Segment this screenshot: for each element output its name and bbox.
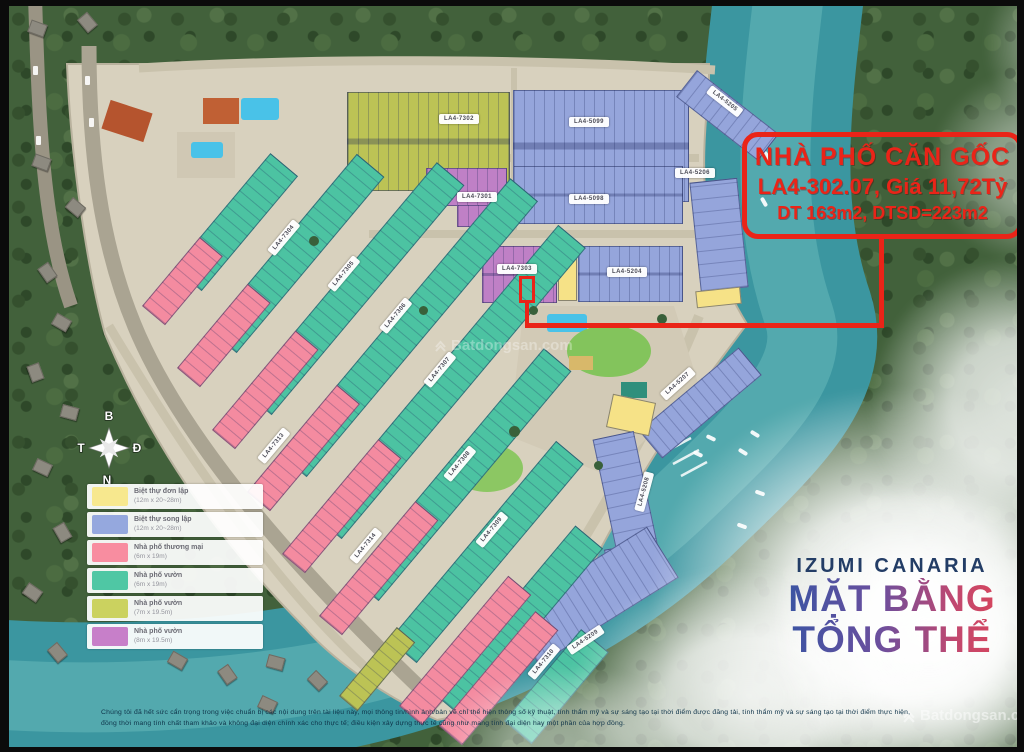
listing-annotation-box: NHÀ PHỐ CĂN GỐC LA4-302.07, Giá 11,72Tỷ … (742, 132, 1017, 239)
legend-swatch (92, 487, 128, 506)
highlighted-lot (519, 276, 535, 303)
legend-text: Biệt thự đơn lập(12m x 20~28m) (134, 488, 188, 504)
legend-text: Nhà phố thương mại(6m x 19m) (134, 544, 203, 560)
watermark-center: Batdongsan.com (434, 337, 573, 354)
annotation-connector-horizontal (525, 323, 884, 328)
block-label: LA4-7303 (497, 264, 537, 274)
legend-text: Nhà phố vườn(6m x 19m) (134, 572, 182, 588)
title-line2: TỔNG THỂ (764, 619, 1017, 660)
title-line1: MẶT BẰNG (764, 578, 1017, 619)
legend-item: Biệt thự đơn lập(12m x 20~28m) (87, 484, 263, 509)
legend-item: Nhà phố vườn(8m x 19.5m) (87, 624, 263, 649)
block-label: LA4-7302 (439, 114, 479, 124)
compass-west-label: T (77, 441, 85, 455)
masterplan-canvas: LA4-7302 LA4-5099 LA4-7301 LA4-5098 LA4-… (9, 6, 1017, 747)
annotation-line2: LA4-302.07, Giá 11,72Tỷ (747, 174, 1017, 200)
compass-rose: B Đ N T (73, 406, 145, 490)
legend-swatch (92, 627, 128, 646)
screenshot-frame: LA4-7302 LA4-5099 LA4-7301 LA4-5098 LA4-… (0, 0, 1024, 752)
disclaimer-line2: đồng thời mang tính chất tham khảo và kh… (101, 719, 937, 730)
compass-east-label: Đ (133, 441, 142, 455)
annotation-connector-vertical (879, 237, 884, 326)
tree (509, 426, 520, 437)
legend-text: Nhà phố vườn(8m x 19.5m) (134, 628, 182, 644)
block-label: LA4-5098 (569, 194, 609, 204)
block-label: LA4-7301 (457, 192, 497, 202)
block-label: LA4-5206 (675, 168, 715, 178)
legend: Biệt thự đơn lập(12m x 20~28m)Biệt thự s… (87, 484, 263, 652)
tree (309, 236, 319, 246)
legend-swatch (92, 571, 128, 590)
legend-text: Nhà phố vườn(7m x 19.5m) (134, 600, 182, 616)
project-title-block: IZUMI CANARIA MẶT BẰNG TỔNG THỂ (764, 555, 1017, 661)
annotation-line1: NHÀ PHỐ CĂN GỐC (747, 143, 1017, 172)
annotation-line3: DT 163m2, DTSD=223m2 (747, 203, 1017, 224)
project-name: IZUMI CANARIA (764, 555, 1017, 578)
block-label: LA4-5099 (569, 117, 609, 127)
tree (419, 306, 428, 315)
legend-item: Nhà phố thương mại(6m x 19m) (87, 540, 263, 565)
annotation-connector-lot (525, 302, 529, 325)
legend-item: Nhà phố vườn(6m x 19m) (87, 568, 263, 593)
legend-swatch (92, 599, 128, 618)
compass-north-label: B (105, 409, 114, 423)
legend-item: Nhà phố vườn(7m x 19.5m) (87, 596, 263, 621)
legend-text: Biệt thự song lập(12m x 20~28m) (134, 516, 192, 532)
watermark-text: Batdongsan.com (451, 337, 573, 354)
disclaimer: Chúng tôi đã hết sức cẩn trọng trong việ… (101, 708, 937, 730)
tree (594, 461, 603, 470)
block-label: LA4-5204 (607, 267, 647, 277)
tree (529, 306, 538, 315)
watermark-logo-icon (434, 339, 447, 352)
legend-item: Biệt thự song lập(12m x 20~28m) (87, 512, 263, 537)
disclaimer-line1: Chúng tôi đã hết sức cẩn trọng trong việ… (101, 708, 937, 719)
legend-swatch (92, 543, 128, 562)
legend-swatch (92, 515, 128, 534)
